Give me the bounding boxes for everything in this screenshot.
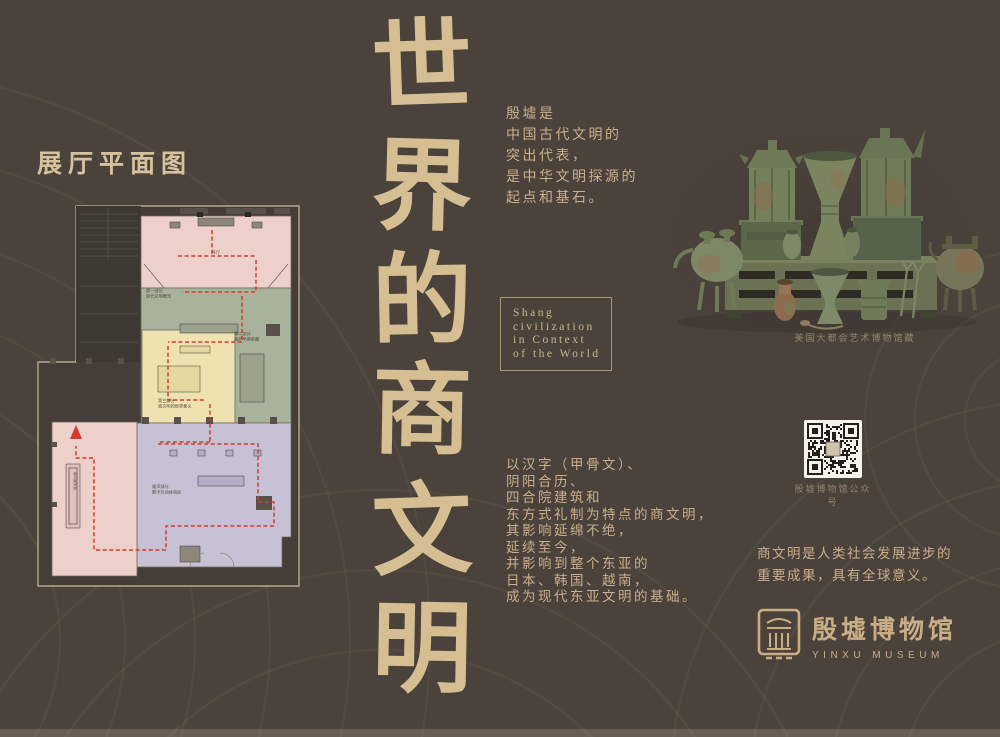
logo-name-cn: 殷墟博物馆 <box>812 610 957 646</box>
body-text: 以汉字（甲骨文）、 阴阳合历、 四合院建筑和 东方式礼制为特点的商文明， 其影响… <box>506 457 714 606</box>
intro-line: 是中华文明探源的 <box>506 167 638 188</box>
body-line: 四合院建筑和 <box>506 490 714 507</box>
calligraphy-char-5: 文 <box>360 478 483 582</box>
body-line: 成为现代东亚文明的基础。 <box>506 589 714 606</box>
english-title-line: in Context <box>513 334 601 348</box>
label-part1-2: 商代文明概览 <box>146 293 171 300</box>
english-title-box: Shang civilization in Context of the Wor… <box>500 297 612 371</box>
body-line: 日本、韩国、越南， <box>506 573 714 590</box>
body-line: 东方式礼制为特点的商文明， <box>506 507 714 524</box>
qr-caption: 殷墟博物馆公众号 <box>791 482 875 508</box>
poster-canvas: 展厅平面图 <box>0 0 1000 737</box>
plan-stair-block <box>76 206 141 362</box>
english-title-line: civilization <box>513 321 601 335</box>
logo-seal-emblem <box>756 607 802 663</box>
significance-line: 商文明是人类社会发展进步的 <box>757 543 952 565</box>
label-service-desk: 观众服务台 <box>73 472 78 490</box>
qr-code <box>804 420 862 478</box>
intro-line: 殷墟是 <box>506 104 638 125</box>
calligraphy-char-2: 界 <box>361 134 484 237</box>
calligraphy-char-1: 世 <box>360 14 483 118</box>
label-part3-2: 商文明的世界意义 <box>158 403 192 410</box>
calligraphy-char-4: 商 <box>361 359 483 461</box>
body-line: 以汉字（甲骨文）、 <box>506 457 714 474</box>
calligraphy-char-6: 明 <box>361 597 483 699</box>
bronze-artifacts-photo <box>655 110 985 340</box>
body-line: 阴阳合历、 <box>506 474 714 491</box>
logo-name-en: YINXU MUSEUM <box>812 650 957 661</box>
body-line: 并影响到整个东亚的 <box>506 556 714 573</box>
significance-line: 重要成果，具有全球意义。 <box>757 565 952 587</box>
label-ending-2: 数字互动体验区 <box>152 489 181 496</box>
zone-temporary-pink <box>52 422 137 576</box>
floor-plan-heading: 展厅平面图 <box>37 144 192 180</box>
intro-text: 殷墟是 中国古代文明的 突出代表， 是中华文明探源的 起点和基石。 <box>506 104 638 209</box>
english-title-line: of the World <box>513 348 601 362</box>
body-line: 其影响延绵不绝， <box>506 523 714 540</box>
intro-line: 起点和基石。 <box>506 188 638 209</box>
label-lobby: 序厅 <box>212 249 220 256</box>
body-line: 延续至今， <box>506 540 714 557</box>
calligraphy-char-3: 的 <box>361 249 483 351</box>
label-part2-2: 海外早期收藏 <box>234 336 260 343</box>
artifact-caption: 美国大都会艺术博物馆藏 <box>765 331 945 344</box>
floor-plan: 序厅 第一部分 商代文明概览 第二部分 海外早期收藏 第三部分 商文明的世界意义… <box>30 196 310 592</box>
intro-line: 突出代表， <box>506 146 638 167</box>
intro-line: 中国古代文明的 <box>506 125 638 146</box>
museum-logo: 殷墟博物馆 YINXU MUSEUM <box>756 607 957 663</box>
english-title-line: Shang <box>513 307 601 321</box>
significance-text: 商文明是人类社会发展进步的 重要成果，具有全球意义。 <box>757 543 952 587</box>
bottom-edge-strip <box>0 729 1000 737</box>
